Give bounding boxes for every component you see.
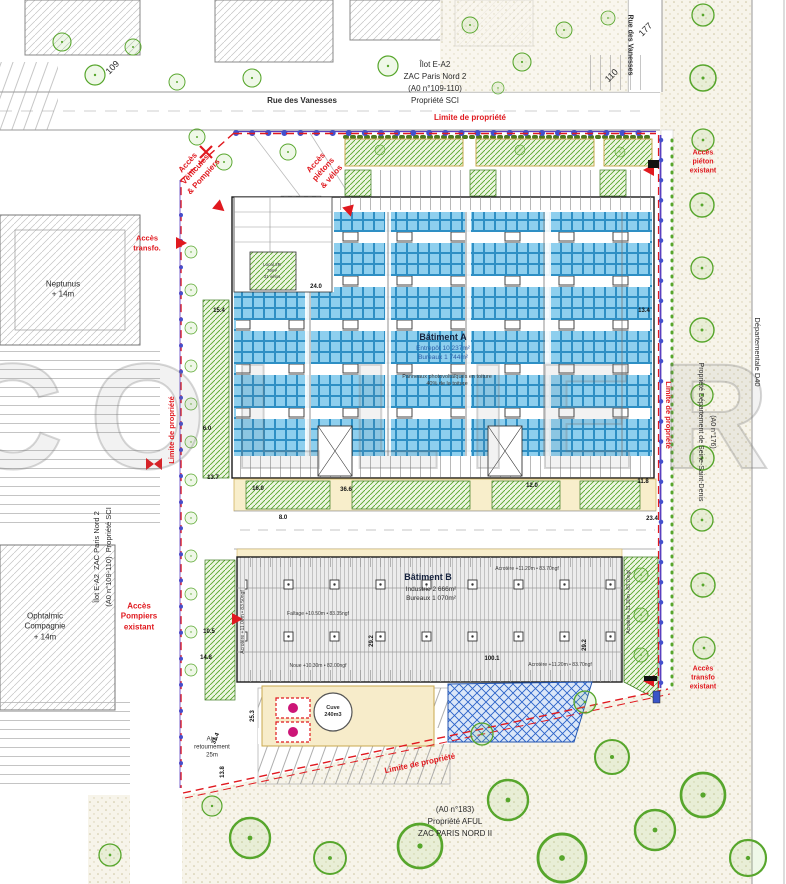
site-plan-canvas: [0, 0, 786, 884]
north-planting: [345, 137, 652, 196]
building-a: [232, 197, 654, 478]
building-b: [237, 557, 622, 682]
central-yard: [234, 479, 656, 557]
plan-root: COLLIERS ® Rue des Vanesses Rue des Vane…: [0, 0, 786, 884]
right-road-verge: [660, 0, 786, 884]
